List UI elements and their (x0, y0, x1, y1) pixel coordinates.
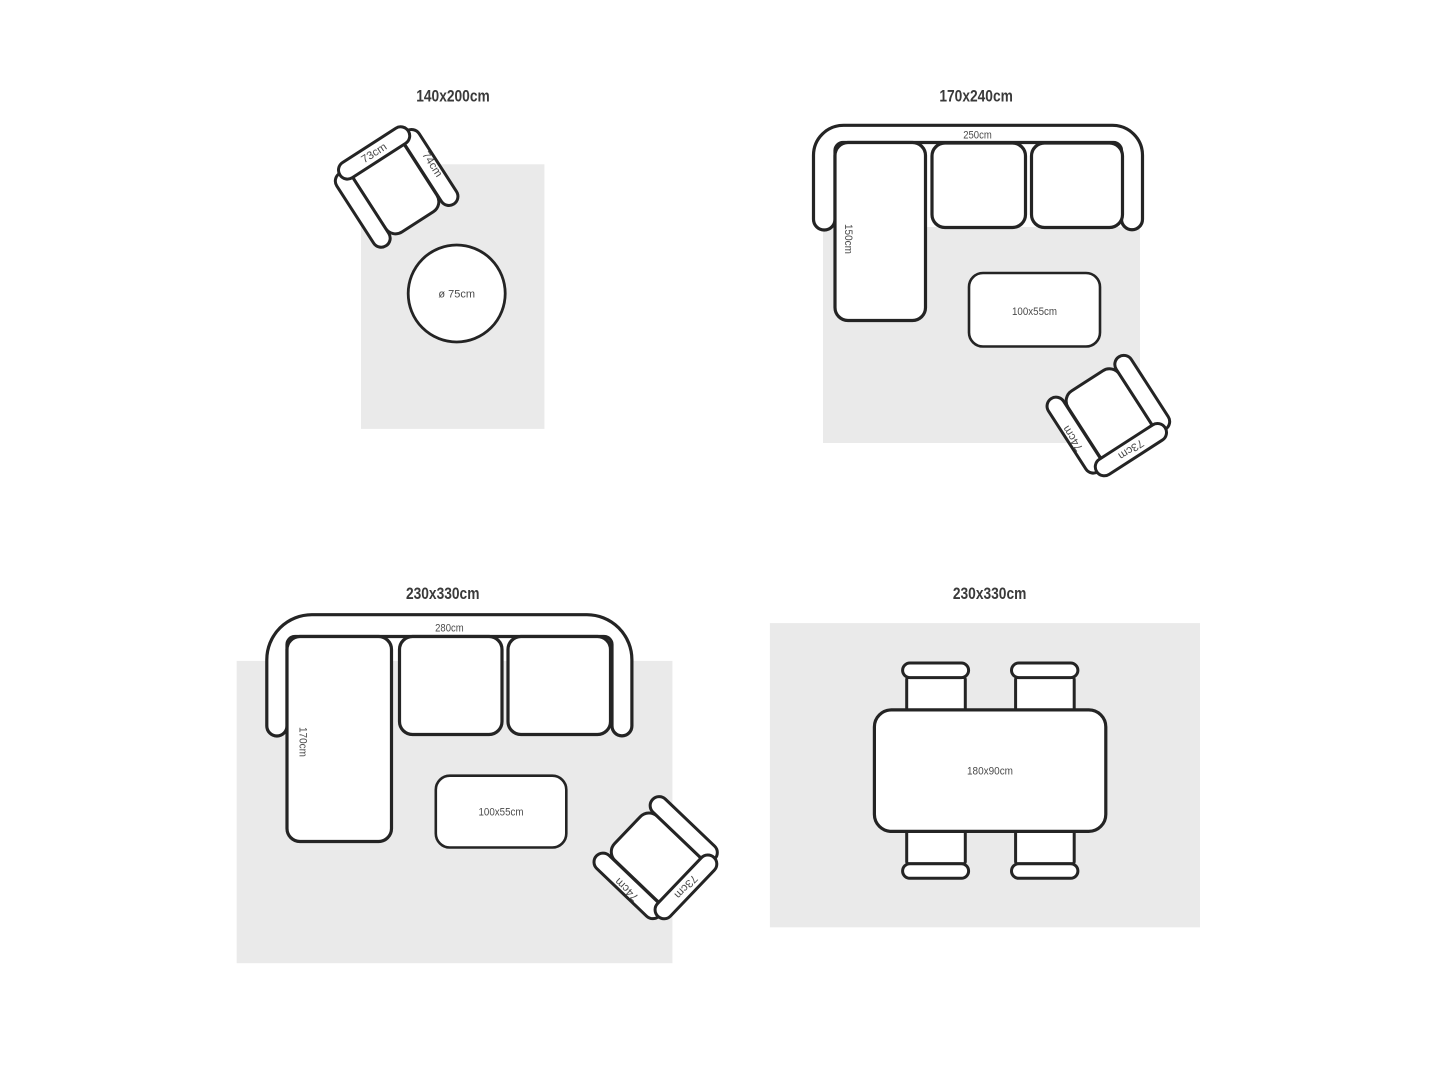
svg-text:100x55cm: 100x55cm (1012, 306, 1057, 318)
svg-text:100x55cm: 100x55cm (479, 806, 524, 818)
svg-text:180x90cm: 180x90cm (967, 765, 1013, 777)
svg-text:170cm: 170cm (296, 727, 308, 757)
svg-text:140x200cm: 140x200cm (416, 87, 490, 106)
svg-text:230x330cm: 230x330cm (953, 584, 1027, 603)
svg-text:170x240cm: 170x240cm (939, 87, 1013, 106)
svg-text:280cm: 280cm (435, 622, 464, 634)
svg-text:250cm: 250cm (963, 129, 992, 141)
svg-text:230x330cm: 230x330cm (406, 584, 480, 603)
svg-text:150cm: 150cm (842, 224, 854, 254)
svg-text:ø 75cm: ø 75cm (438, 288, 475, 300)
